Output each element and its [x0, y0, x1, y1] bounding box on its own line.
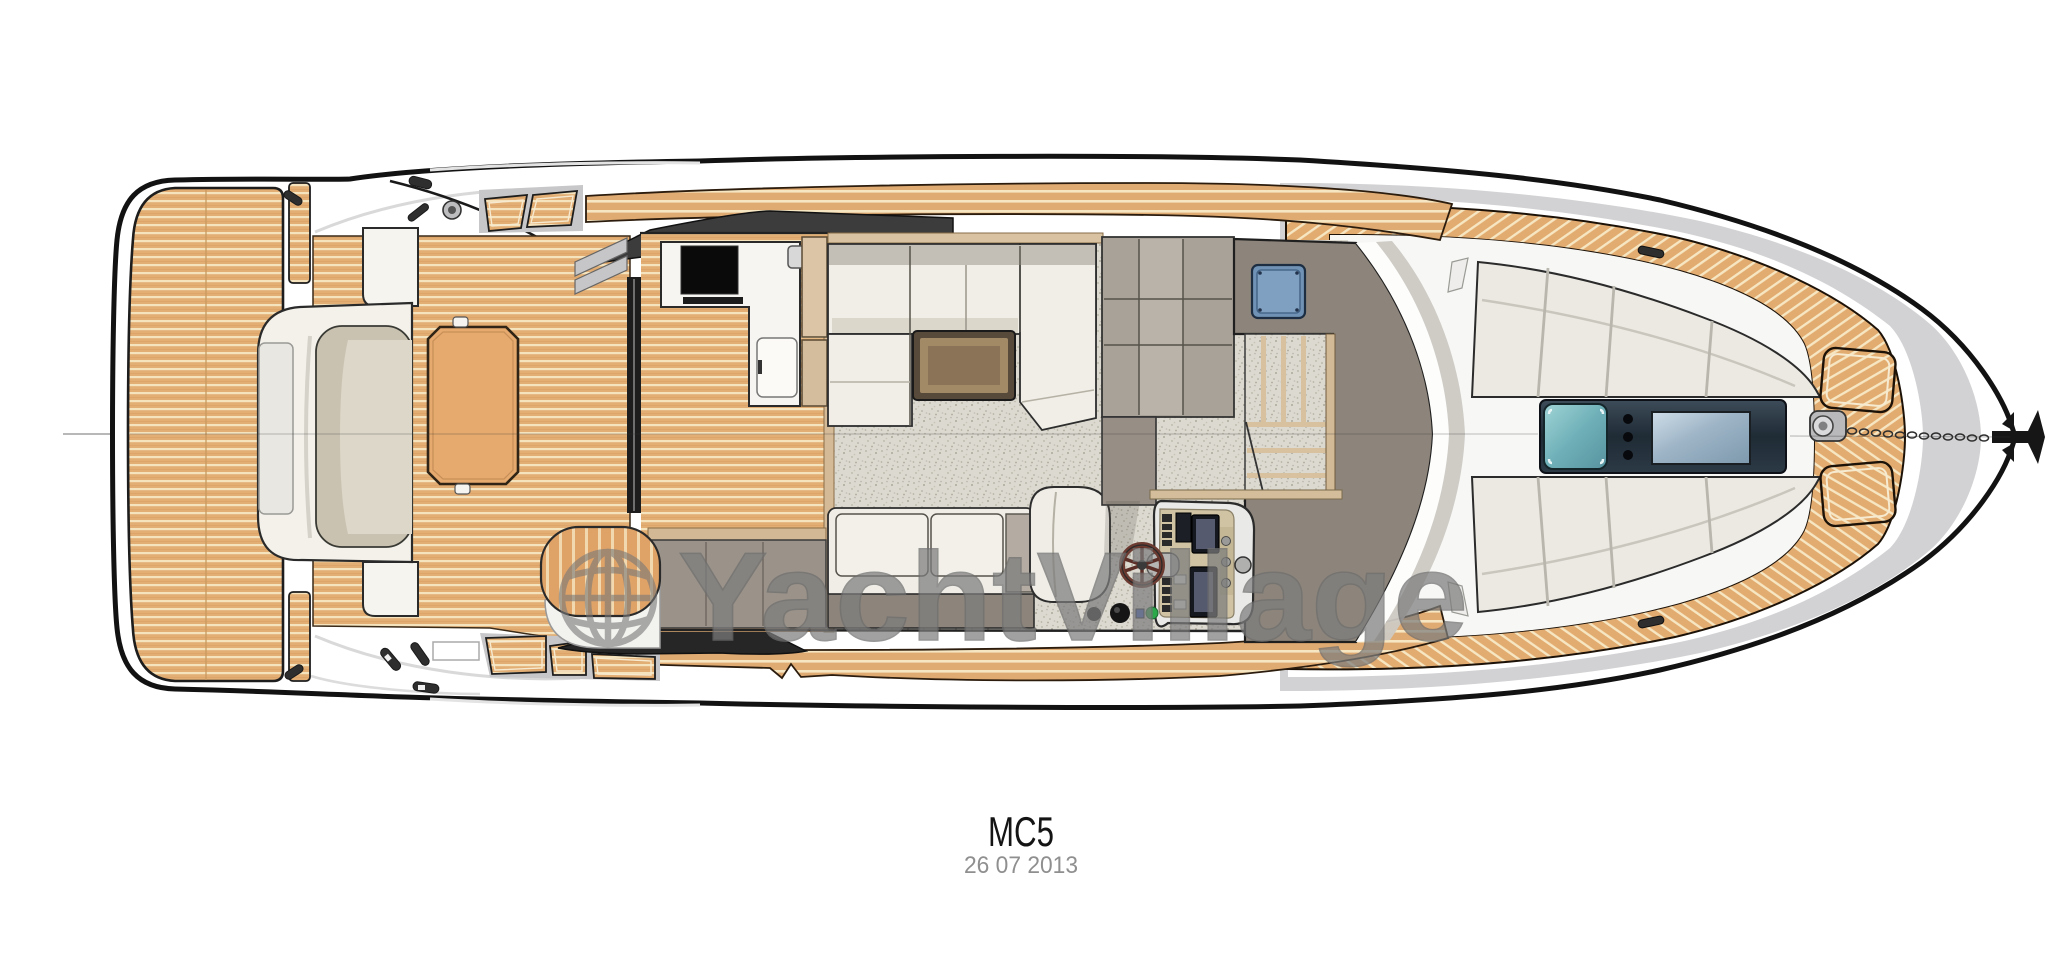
svg-text:YachtVillage: YachtVillage [678, 526, 1468, 667]
svg-text:26 07 2013: 26 07 2013 [964, 852, 1078, 879]
svg-text:MC5: MC5 [988, 808, 1054, 855]
